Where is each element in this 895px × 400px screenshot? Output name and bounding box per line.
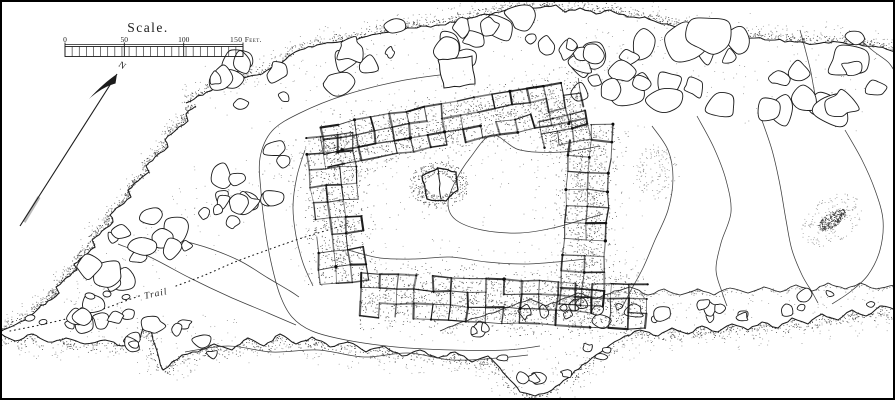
east-contour-3 [760, 115, 818, 303]
north-arrow: N [20, 59, 128, 226]
plaza-contour [448, 135, 603, 233]
stippled-mound [802, 194, 862, 246]
scale-bar-title: Scale. [127, 20, 169, 35]
east-contour-2 [697, 116, 731, 306]
north-arrow-label: N [117, 59, 128, 71]
north-arrow-drawing [20, 74, 117, 226]
top-cliff-edge [186, 5, 895, 103]
scale-tick-50: 50 [121, 35, 129, 44]
ruin-room-walls [305, 78, 649, 329]
scale-tick-100: 100 [178, 35, 190, 44]
plaza-scatter [341, 138, 587, 256]
site-map: Trail N Scale. 0 50 100 150 Feet. [0, 0, 895, 400]
south-contour [185, 346, 528, 360]
survey-map-figure: Trail N Scale. 0 50 100 150 Feet. [0, 0, 895, 400]
boulder-fields [24, 5, 887, 388]
scale-tick-0: 0 [63, 35, 67, 44]
map-drawing [0, 0, 895, 400]
southwest-contour-b [188, 242, 299, 297]
scale-tick-150-feet: 150 Feet. [230, 35, 262, 44]
trail-label: Trail [143, 287, 168, 302]
central-structure [410, 162, 468, 208]
arrow-shaft [20, 74, 117, 226]
east-contour-1 [622, 126, 673, 308]
plaza-lower-contour [348, 250, 586, 264]
scale-bar-ruler [65, 43, 243, 57]
large-square-boulder [438, 56, 475, 88]
